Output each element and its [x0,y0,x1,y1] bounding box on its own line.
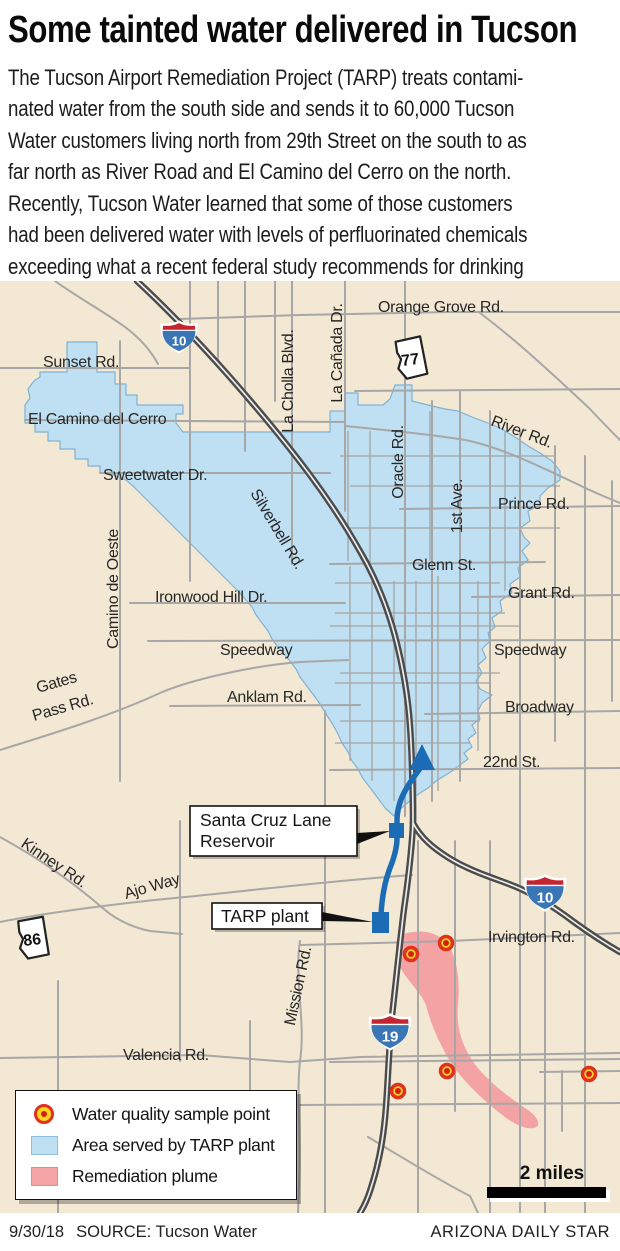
legend-item-service-area: Area served by TARP plant [29,1133,296,1157]
body-line: Water customers living north from 29th S… [8,125,521,157]
road [540,1071,620,1072]
body-line: far north as River Road and El Camino de… [8,156,521,188]
publish-date: 9/30/18 [9,1223,64,1242]
label-la-cholla: La Cholla Blvd. [280,329,297,432]
reservoir-marker [389,823,404,838]
label-oracle: Oracle Rd. [390,425,407,498]
reservoir-callout: Santa Cruz Lane Reservoir [190,806,390,859]
map-canvas: Orange Grove Rd. Sunset Rd. El Camino de… [0,281,620,1213]
body-line: had been delivered water with levels of … [8,219,521,251]
label-speedway-west: Speedway [220,642,293,659]
map-legend: Water quality sample point Area served b… [15,1090,297,1200]
label-valencia: Valencia Rd. [123,1047,209,1064]
article-header: Some tainted water delivered in Tucson T… [0,0,620,314]
publication-credit: ARIZONA DAILY STAR [430,1223,610,1242]
body-line: exceeding what a recent federal study re… [8,251,521,283]
reservoir-callout-text-1: Santa Cruz Lane [200,810,331,830]
sample-point-center [408,951,414,957]
label-orange-grove: Orange Grove Rd. [378,299,504,316]
article-body: The Tucson Airport Remediation Project (… [8,62,521,314]
road-speedway [148,640,620,641]
i19-shield-number: 19 [382,1029,399,1046]
label-sweetwater: Sweetwater Dr. [103,467,207,484]
label-la-canada: La Cañada Dr. [329,303,346,402]
label-glenn: Glenn St. [412,557,476,574]
label-el-camino: El Camino del Cerro [28,411,167,428]
tarp-plant-marker [372,912,389,933]
label-speedway-east: Speedway [494,642,567,659]
legend-item-plume: Remediation plume [29,1164,296,1188]
body-line: nated water from the south side and send… [8,93,521,125]
scale-label: 2 miles [520,1163,584,1184]
i10-east-shield-number: 10 [537,890,554,907]
label-anklam: Anklam Rd. [227,689,307,706]
label-22nd: 22nd St. [483,754,540,771]
source-credit: SOURCE: Tucson Water [76,1223,257,1242]
label-1st-ave: 1st Ave. [449,479,466,533]
label-sunset: Sunset Rd. [43,354,119,371]
label-irvington: Irvington Rd. [488,929,575,946]
legend-label: Area served by TARP plant [72,1135,275,1156]
sample-point-center [443,940,449,946]
sample-point-center [444,1068,450,1074]
label-prince: Prince Rd. [498,496,570,513]
i10-shield-number: 10 [172,334,187,349]
label-grant: Grant Rd. [508,585,575,602]
label-camino-de-oeste: Camino de Oeste [105,529,122,649]
sample-point-icon [34,1104,54,1124]
sample-point-center [586,1071,592,1077]
legend-label: Remediation plume [72,1166,218,1187]
service-area-swatch [31,1136,58,1155]
tarp-callout-text: TARP plant [221,906,309,926]
credit-line: 9/30/18 SOURCE: Tucson Water ARIZONA DAI… [0,1213,620,1251]
body-line: Recently, Tucson Water learned that some… [8,188,521,220]
tucson-map: Orange Grove Rd. Sunset Rd. El Camino de… [0,281,620,1213]
legend-label: Water quality sample point [72,1104,270,1125]
reservoir-callout-text-2: Reservoir [200,831,275,851]
scale-bar-fill [487,1187,606,1198]
sample-point-center [395,1088,401,1094]
body-line: The Tucson Airport Remediation Project (… [8,62,521,94]
headline: Some tainted water delivered in Tucson [8,10,503,52]
sr86-shield-number: 86 [23,931,43,950]
sr77-shield-number: 77 [400,351,420,370]
plume-swatch [31,1167,58,1186]
label-broadway: Broadway [505,699,574,716]
label-ironwood: Ironwood Hill Dr. [155,589,267,606]
legend-item-sample-point: Water quality sample point [29,1102,296,1126]
